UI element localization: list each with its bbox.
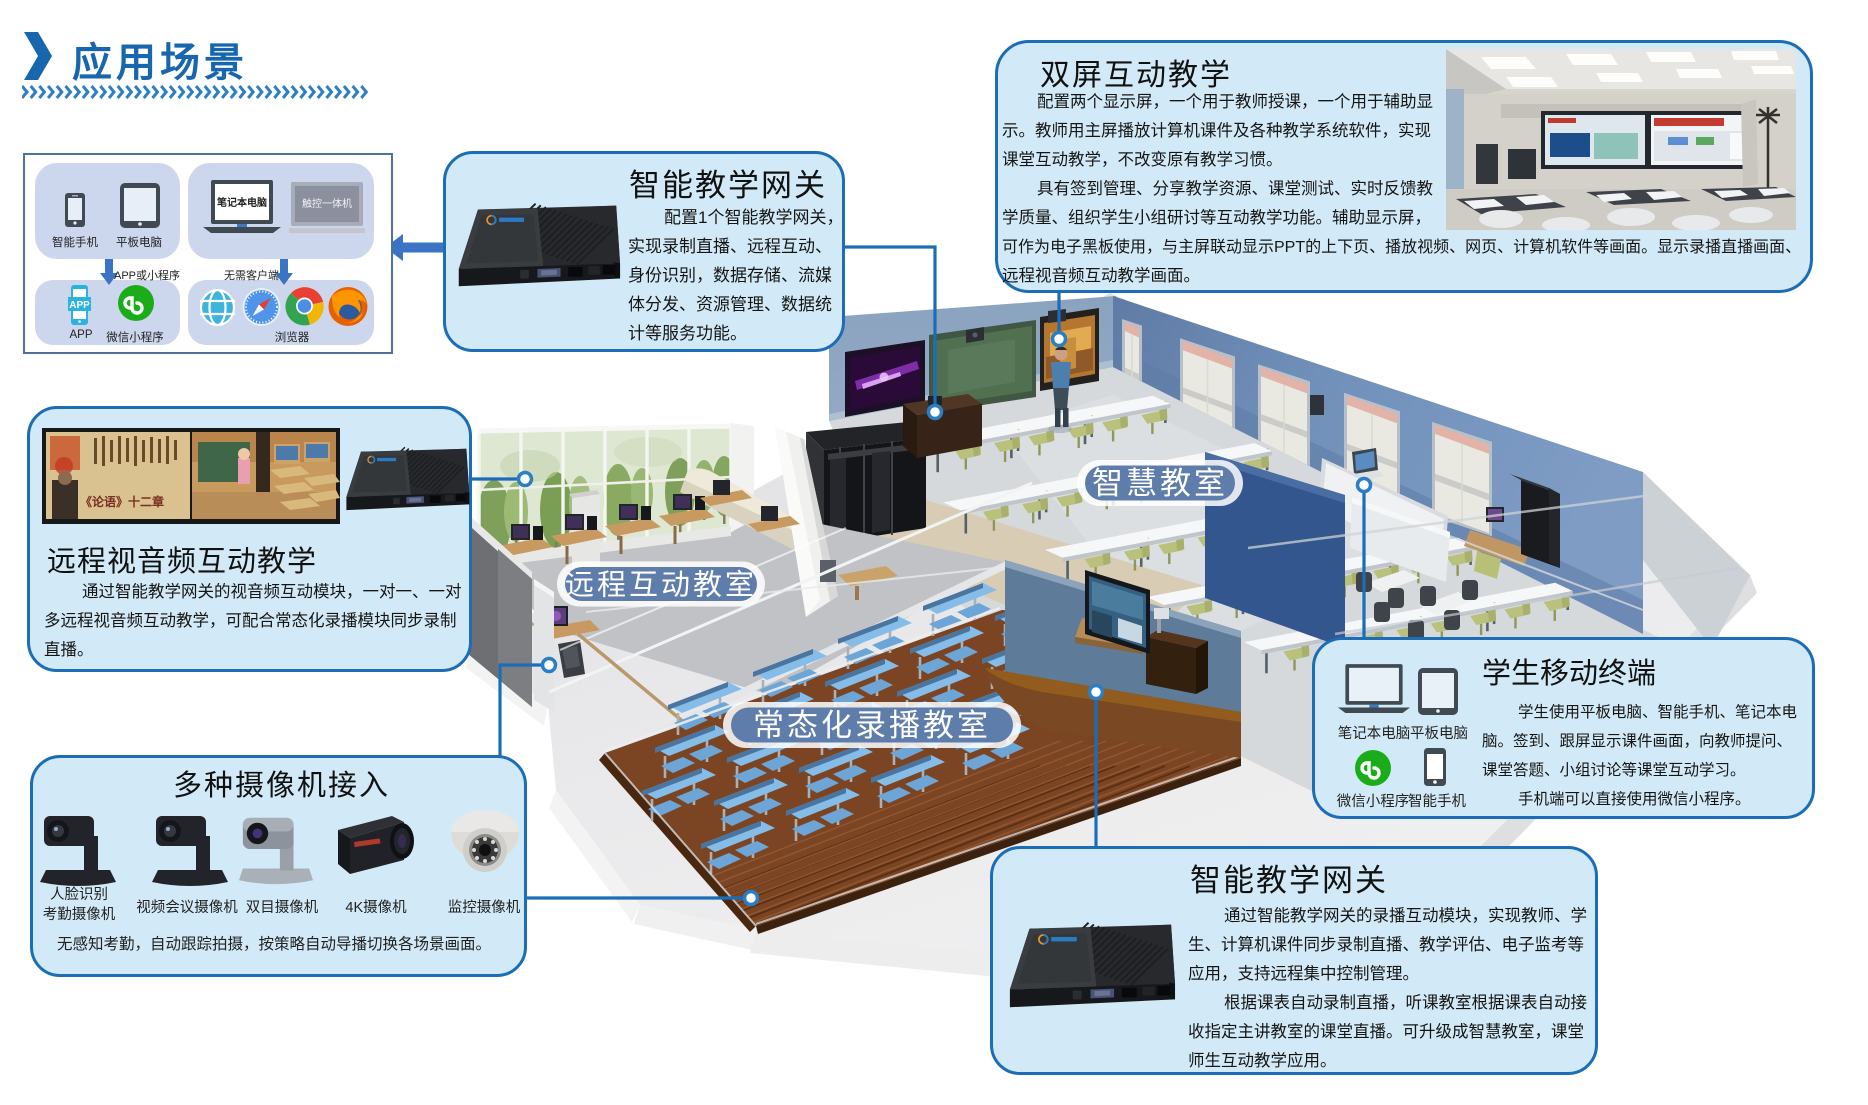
svg-text:常态化录播教室: 常态化录播教室 <box>753 708 991 743</box>
svg-text:远程互动教室: 远程互动教室 <box>565 568 757 601</box>
svg-text:笔记本电脑: 笔记本电脑 <box>217 196 267 209</box>
svg-text:触控一体机: 触控一体机 <box>302 197 352 210</box>
svg-text:APP: APP <box>69 300 90 311</box>
svg-text:《论语》十二章: 《论语》十二章 <box>80 494 164 509</box>
svg-text:智慧教室: 智慧教室 <box>1092 466 1228 501</box>
